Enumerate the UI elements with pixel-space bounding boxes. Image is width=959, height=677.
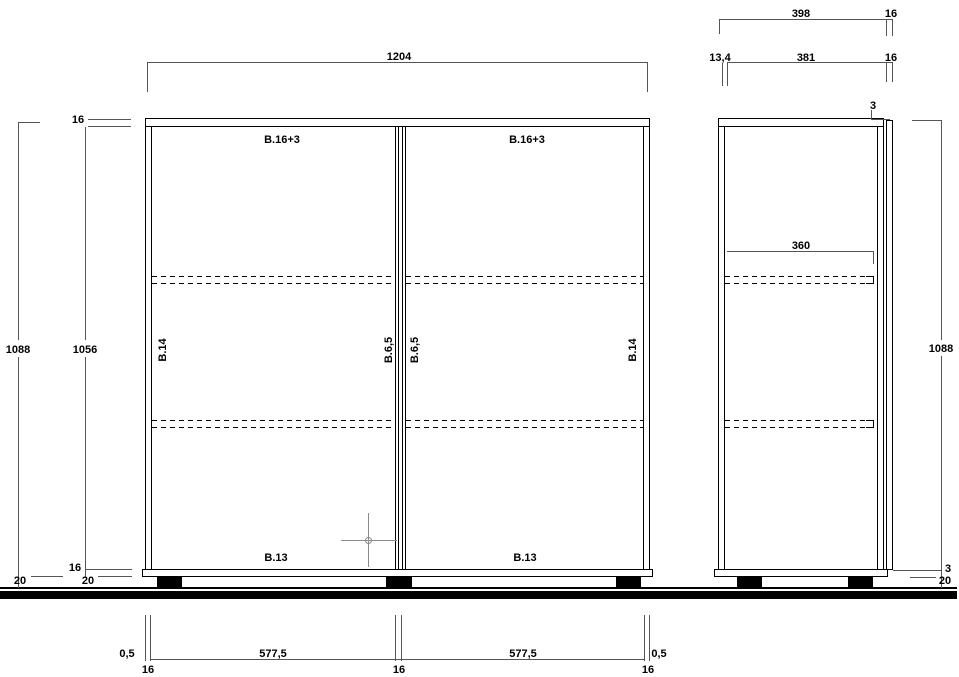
dim-gap-bottom-label: 3: [945, 563, 951, 575]
dim-top-thickness-label: 16: [72, 114, 84, 126]
front-view-shelf-dashed-lines: [152, 277, 643, 428]
foot: [848, 577, 873, 587]
dim-plinth-right-label: 20: [82, 575, 94, 587]
cad-drawing-canvas[interactable]: 1204 16 1088 1056 B.16+3 B.16+3 B.14 B.1…: [0, 0, 959, 677]
foot: [616, 577, 641, 587]
side-panel-label-left: B.14: [157, 338, 169, 362]
dim-height-outer-label: 1088: [6, 344, 30, 356]
foot: [386, 577, 412, 587]
dim-thickness-left-label: 16: [142, 664, 154, 676]
front-view-feet: [157, 577, 641, 587]
top-panel-label-left: B.16+3: [264, 134, 300, 146]
dim-offset-right-label: 0,5: [651, 648, 666, 660]
side-view-structure: [714, 118, 893, 577]
dim-bottom-thickness-label: 16: [69, 562, 81, 574]
dim-thickness-right-label: 16: [642, 664, 654, 676]
dim-bay-left-label: 577,5: [259, 648, 287, 660]
side-view-labels: 398 16 13,4 381 16 3 360 1088 3 20: [709, 8, 953, 587]
ground-line: [0, 588, 957, 599]
side-view-feet: [737, 577, 873, 587]
side-panel-label-right: B.14: [627, 338, 639, 362]
divider-label-right: B.6,5: [409, 337, 421, 363]
crosshair-cursor: [341, 513, 397, 567]
front-view-structure: [142, 118, 653, 577]
dim-back-inset-label: 13,4: [709, 52, 731, 64]
dim-gap-top-label: 3: [870, 100, 876, 112]
side-view-shelf-dashed-lines: [725, 277, 866, 428]
dim-thickness-center-label: 16: [393, 664, 405, 676]
bottom-panel-label-left: B.13: [264, 552, 287, 564]
dim-depth-inner-label: 381: [797, 52, 815, 64]
divider-label-left: B.6,5: [383, 337, 395, 363]
dim-offset-left-label: 0,5: [119, 648, 134, 660]
dim-front-label: 16: [885, 52, 897, 64]
dim-bay-right-label: 577,5: [509, 648, 537, 660]
foot: [737, 577, 762, 587]
front-view-labels: 1204 16 1088 1056 B.16+3 B.16+3 B.14 B.1…: [6, 51, 667, 676]
dim-plinth-label: 20: [939, 575, 951, 587]
dim-height-label: 1088: [929, 343, 953, 355]
dim-shelf-depth-label: 360: [792, 240, 810, 252]
dim-front-top-label: 16: [885, 8, 897, 20]
bottom-panel-label-right: B.13: [513, 552, 536, 564]
dim-height-inner-label: 1056: [73, 344, 97, 356]
top-panel-label-right: B.16+3: [509, 134, 545, 146]
dim-plinth-left-label: 20: [14, 575, 26, 587]
foot: [157, 577, 182, 587]
dim-depth-outer-label: 398: [792, 8, 810, 20]
dim-width-label: 1204: [387, 51, 412, 63]
